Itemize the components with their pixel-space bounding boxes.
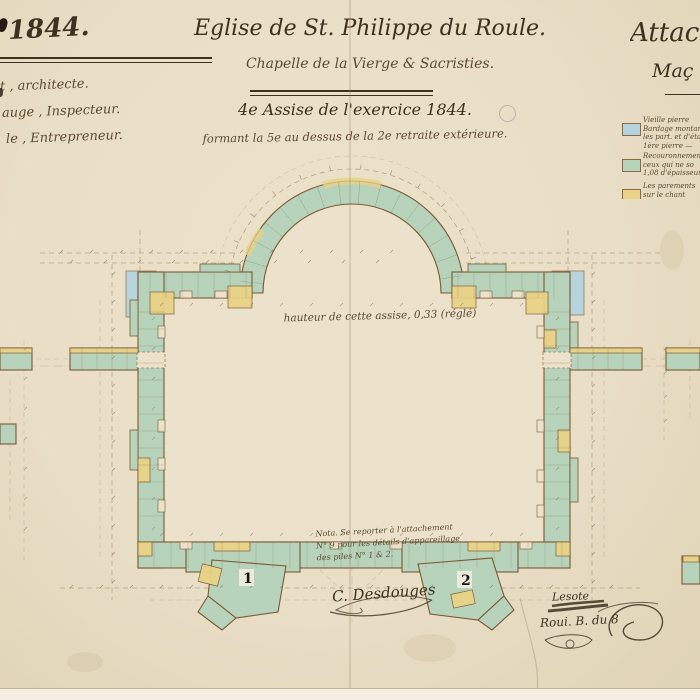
tick-mark: [24, 497, 27, 500]
wall-notch: [158, 500, 165, 512]
stone-block: [452, 286, 476, 308]
attachment-rule: [665, 94, 700, 95]
tick-mark: [592, 412, 595, 415]
right-doorway: [543, 352, 571, 368]
paper-fold-line: [349, 0, 351, 688]
legend-text: sur le chant: [643, 191, 700, 200]
tick-mark: [592, 328, 595, 331]
tick-mark: [210, 250, 213, 253]
tick-mark: [664, 395, 667, 398]
left-doorway: [137, 352, 165, 368]
tick-mark: [664, 371, 667, 374]
floor-areas: [164, 204, 544, 542]
legend-text: Les parements: [643, 182, 700, 191]
tick-mark: [112, 300, 115, 303]
tick-mark: [390, 170, 392, 175]
tick-mark: [70, 585, 73, 588]
tick-mark: [112, 328, 115, 331]
embossed-stamp: [499, 105, 516, 122]
course-line: 4e Assise de l'exercice 1844.: [200, 100, 510, 119]
wall-notch: [215, 291, 227, 298]
signature-loop: [566, 640, 574, 648]
tick-mark: [190, 585, 193, 588]
tick-mark: [592, 580, 595, 583]
legend-text: les part. et d'éta: [643, 133, 700, 142]
tick-mark: [592, 384, 595, 387]
legend-swatch-green: [622, 159, 641, 172]
legend-text: 1ère pierre —: [643, 142, 700, 151]
stone-block: [150, 292, 174, 314]
stone-block: [138, 458, 150, 482]
tick-mark: [310, 585, 313, 588]
legend-swatch-blue: [622, 123, 641, 136]
tick-mark: [240, 260, 243, 263]
tick-mark: [24, 437, 27, 440]
stone-block: [138, 542, 152, 556]
paper-bottom-edge: [0, 688, 700, 700]
tick-mark: [24, 467, 27, 470]
tick-mark: [664, 419, 667, 422]
apse-stone-segment: [323, 181, 381, 185]
tick-mark: [112, 384, 115, 387]
stone-block: [228, 286, 252, 308]
wall-notch: [537, 420, 544, 432]
tick-mark: [24, 377, 27, 380]
legend-swatch-yellow: [622, 189, 641, 199]
stain: [67, 652, 103, 672]
tick-mark: [418, 184, 421, 188]
tick-mark: [250, 214, 254, 217]
wall-notch: [537, 326, 544, 338]
stone-block: [526, 292, 548, 314]
left-edge-stub-lower: [0, 424, 16, 444]
tick-mark: [138, 260, 141, 263]
legend-row-new-course: Recouronnement ceux qui ne so 1,08 d'épa…: [622, 152, 700, 178]
sheet-title: Eglise de St. Philippe du Roule.: [180, 16, 560, 41]
wall-notch: [520, 542, 532, 549]
wall-step: [130, 300, 138, 336]
legend-text: Vieille pierre: [643, 116, 700, 125]
tick-mark: [300, 175, 302, 180]
tick-mark: [104, 260, 107, 263]
tick-mark: [330, 166, 331, 171]
tick-mark: [592, 272, 595, 275]
tick-mark: [471, 257, 476, 258]
center-title-rule: [250, 90, 433, 96]
tick-mark: [592, 300, 595, 303]
scanned-plan-sheet: 1 2 1844. t , architecte. auge , Inspect…: [0, 0, 700, 700]
tick-mark: [592, 440, 595, 443]
tick-mark: [592, 496, 595, 499]
tick-mark: [112, 552, 115, 555]
stone-block: [544, 330, 556, 348]
stain: [660, 230, 684, 270]
stone-block: [556, 542, 570, 556]
tick-mark: [70, 260, 73, 263]
wall-notch: [537, 505, 544, 517]
right-wall: [544, 272, 570, 568]
tick-mark: [206, 260, 209, 263]
tick-mark: [112, 580, 115, 583]
signature-loop: [545, 635, 592, 649]
tick-mark: [112, 524, 115, 527]
stone-cap: [683, 556, 699, 562]
apse-opening: [263, 292, 441, 298]
sheet-subtitle: Chapelle de la Vierge & Sacristies.: [200, 56, 540, 72]
credit-architect: t , architecte.: [0, 76, 89, 94]
wall-step: [200, 264, 240, 272]
tick-mark: [120, 250, 123, 253]
stone-cap: [0, 348, 32, 353]
left-edge-chain: [10, 340, 24, 560]
stain: [404, 634, 456, 662]
legend-row-old-stone: Vieille pierre Bardage montant les part.…: [622, 116, 700, 150]
legend-row-facings: Les parements sur le chant: [622, 182, 700, 199]
attachment-heading: Attac: [630, 18, 700, 48]
year-label: 1844.: [7, 12, 90, 46]
tick-mark: [580, 585, 583, 588]
tick-mark: [160, 585, 163, 588]
tick-mark: [273, 191, 276, 195]
tick-mark: [180, 250, 183, 253]
wall-step: [130, 430, 138, 470]
wall-notch: [180, 542, 192, 549]
tick-mark: [172, 260, 175, 263]
wall-step: [570, 458, 578, 502]
tick-mark: [234, 241, 239, 243]
tick-mark: [592, 524, 595, 527]
tick-mark: [112, 272, 115, 275]
stone-cap: [70, 348, 138, 353]
stone-block: [558, 430, 570, 452]
wall-notch: [537, 470, 544, 482]
tick-mark: [60, 250, 63, 253]
tick-mark: [459, 229, 463, 232]
legend-text: Recouronnement: [643, 152, 700, 161]
legend-text: Bardage montant: [643, 125, 700, 134]
tick-mark: [441, 203, 445, 206]
wall-notch: [158, 420, 165, 432]
tick-mark: [592, 552, 595, 555]
tick-mark: [112, 412, 115, 415]
tick-mark: [112, 468, 115, 471]
tick-mark: [520, 585, 523, 588]
tick-mark: [150, 250, 153, 253]
wall-notch: [158, 326, 165, 338]
tick-mark: [24, 407, 27, 410]
paper-crease: [520, 598, 538, 692]
stone-cap: [570, 348, 642, 353]
tick-mark: [592, 468, 595, 471]
tick-mark: [550, 585, 553, 588]
wall-notch: [158, 458, 165, 470]
legend-text: 1,08 d'épaisseur: [643, 169, 700, 178]
pier-label-1: 1: [243, 571, 253, 587]
stone-cap: [666, 348, 700, 353]
nave-floor: [164, 298, 544, 542]
left-title-rule: [0, 57, 212, 63]
legend-text: ceux qui ne so: [643, 161, 700, 170]
tick-mark: [112, 440, 115, 443]
attachment-subheading: Maç: [652, 60, 700, 82]
tick-mark: [130, 585, 133, 588]
tick-mark: [90, 250, 93, 253]
tick-mark: [24, 527, 27, 530]
pier-label-2: 2: [461, 573, 471, 589]
tick-mark: [240, 250, 243, 253]
stone-block: [214, 542, 250, 551]
signature-contractor: Lesote: [552, 589, 589, 603]
tick-mark: [610, 585, 613, 588]
tick-mark: [100, 585, 103, 588]
tick-mark: [112, 496, 115, 499]
wall-step: [468, 264, 506, 272]
